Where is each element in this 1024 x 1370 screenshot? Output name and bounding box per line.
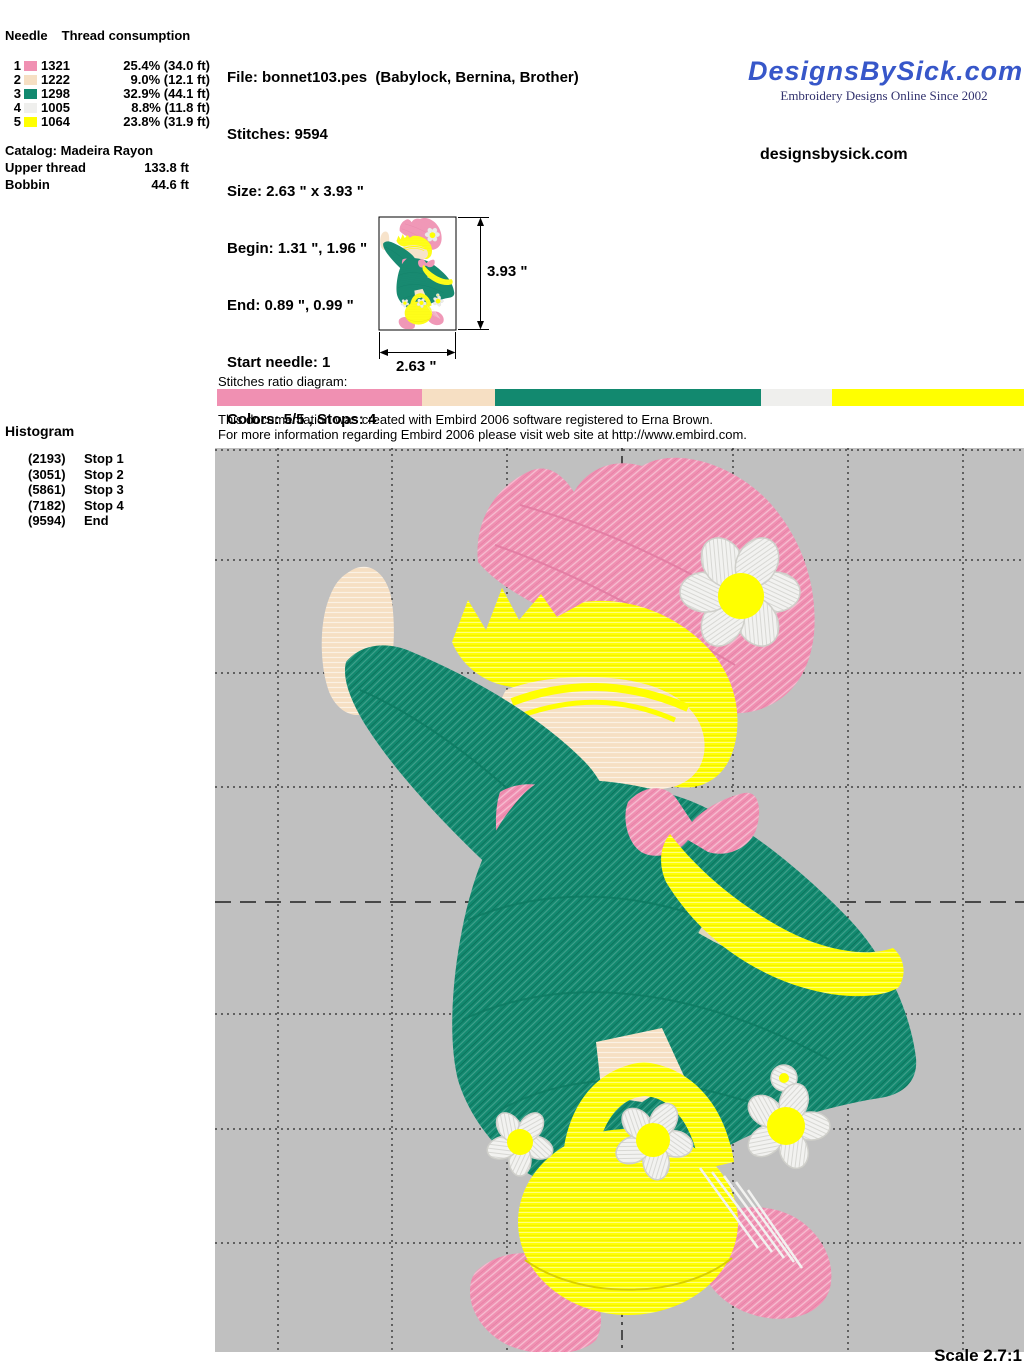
catalog-block: Catalog: Madeira Rayon Upper thread 133.…	[5, 142, 210, 193]
flower-center	[767, 1107, 805, 1145]
thread-code: 1222	[41, 73, 87, 87]
needle-column-header: Needle	[5, 28, 48, 43]
thread-consumption-value: 32.9% (44.1 ft)	[87, 87, 210, 101]
needle-number: 1	[5, 59, 21, 73]
ratio-segment-teal	[495, 389, 761, 406]
thread-consumption-panel: Needle Thread consumption 1 1321 25.4% (…	[5, 28, 210, 193]
histogram-entry: (3051) Stop 2	[28, 467, 124, 483]
stitch-count: (5861)	[28, 482, 84, 498]
stop-label: Stop 1	[84, 451, 124, 467]
flower-center	[507, 1129, 533, 1155]
embird-note: This documentation was created with Embi…	[218, 412, 747, 442]
width-dimension: 2.63 "	[380, 332, 456, 375]
scale-label: Scale 2.7:1	[822, 1346, 1022, 1366]
file-name-line: File: bonnet103.pes (Babylock, Bernina, …	[227, 68, 579, 87]
histogram-list: (2193) Stop 1 (3051) Stop 2 (5861) Stop …	[28, 451, 124, 529]
stitches-line: Stitches: 9594	[227, 125, 579, 144]
thread-color-swatch	[24, 89, 37, 99]
thread-row: 1 1321 25.4% (34.0 ft)	[5, 59, 210, 73]
thread-row: 2 1222 9.0% (12.1 ft)	[5, 73, 210, 87]
histogram-entry: (9594) End	[28, 513, 124, 529]
ratio-segment-yellow	[832, 389, 1024, 406]
needle-number: 2	[5, 73, 21, 87]
histogram-entry: (2193) Stop 1	[28, 451, 124, 467]
embird-note-line1: This documentation was created with Embi…	[218, 412, 747, 427]
thread-row: 3 1298 32.9% (44.1 ft)	[5, 87, 210, 101]
thread-consumption-value: 9.0% (12.1 ft)	[87, 73, 210, 87]
stop-label: Stop 2	[84, 467, 124, 483]
thread-table-header: Needle Thread consumption	[5, 28, 210, 43]
thread-code: 1064	[41, 115, 87, 129]
embroidery-documentation-page: Needle Thread consumption 1 1321 25.4% (…	[0, 0, 1024, 1370]
stop-label: End	[84, 513, 109, 529]
ratio-segment-white	[761, 389, 832, 406]
upper-thread-row: Upper thread 133.8 ft	[5, 159, 189, 176]
ratio-diagram-label: Stitches ratio diagram:	[218, 374, 347, 389]
height-dimension: 3.93 "	[458, 218, 527, 330]
upper-thread-label: Upper thread	[5, 159, 86, 176]
thread-code: 1321	[41, 59, 87, 73]
thread-row: 5 1064 23.8% (31.9 ft)	[5, 115, 210, 129]
thread-color-swatch	[24, 61, 37, 71]
design-preview: 3.93 " 2.63 "	[360, 205, 560, 380]
flower-center	[718, 573, 764, 619]
design-canvas-area	[215, 448, 1024, 1352]
arrow-down-icon	[477, 321, 484, 330]
thread-color-swatch	[24, 117, 37, 127]
thread-consumption-value: 25.4% (34.0 ft)	[87, 59, 210, 73]
thread-consumption-value: 23.8% (31.9 ft)	[87, 115, 210, 129]
histogram-entry: (5861) Stop 3	[28, 482, 124, 498]
bobbin-row: Bobbin 44.6 ft	[5, 176, 189, 193]
needle-number: 4	[5, 101, 21, 115]
thread-color-swatch	[24, 103, 37, 113]
arrow-left-icon	[380, 349, 389, 356]
height-label: 3.93 "	[487, 263, 527, 280]
bobbin-value: 44.6 ft	[151, 176, 189, 193]
thread-color-swatch	[24, 75, 37, 85]
arrow-up-icon	[477, 218, 484, 227]
bobbin-label: Bobbin	[5, 176, 50, 193]
ratio-segment-cream	[422, 389, 495, 406]
histogram-entry: (7182) Stop 4	[28, 498, 124, 514]
thread-code: 1005	[41, 101, 87, 115]
embird-note-line2: For more information regarding Embird 20…	[218, 427, 747, 442]
thread-rows: 1 1321 25.4% (34.0 ft) 2 1222 9.0% (12.1…	[5, 59, 210, 129]
width-label: 2.63 "	[396, 358, 436, 375]
arrow-right-icon	[447, 349, 456, 356]
stitch-count: (3051)	[28, 467, 84, 483]
stitch-count: (9594)	[28, 513, 84, 529]
site-url-text: designsbysick.com	[760, 146, 908, 164]
stop-label: Stop 4	[84, 498, 124, 514]
branding-block: DesignsBySick.com Embroidery Designs Onl…	[748, 56, 1020, 104]
flower-center	[636, 1123, 670, 1157]
histogram-title: Histogram	[5, 423, 74, 439]
size-line: Size: 2.63 " x 3.93 "	[227, 182, 579, 201]
stitch-count: (7182)	[28, 498, 84, 514]
consumption-column-header: Thread consumption	[62, 28, 191, 43]
logo-tagline: Embroidery Designs Online Since 2002	[748, 88, 1020, 104]
ratio-bar	[217, 389, 1024, 406]
needle-number: 3	[5, 87, 21, 101]
stop-label: Stop 3	[84, 482, 124, 498]
stitch-count: (2193)	[28, 451, 84, 467]
ratio-segment-pink	[217, 389, 422, 406]
needle-number: 5	[5, 115, 21, 129]
thread-row: 4 1005 8.8% (11.8 ft)	[5, 101, 210, 115]
thread-code: 1298	[41, 87, 87, 101]
catalog-name: Catalog: Madeira Rayon	[5, 142, 210, 159]
upper-thread-value: 133.8 ft	[144, 159, 189, 176]
designsbysick-logo: DesignsBySick.com	[748, 56, 1020, 87]
thread-consumption-value: 8.8% (11.8 ft)	[87, 101, 210, 115]
